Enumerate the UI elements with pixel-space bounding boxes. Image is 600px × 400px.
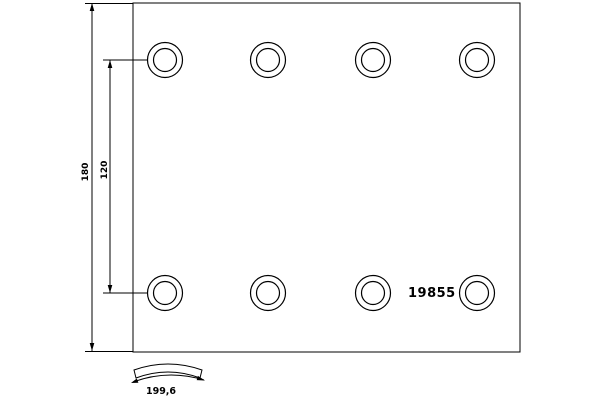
arrowhead-down-icon [90,343,95,351]
arrowhead-up-icon [90,3,95,11]
height-dimension-label: 180 [81,163,91,182]
brake-lining-diagram: 180 120 19855 199,6 [0,0,600,400]
plate-outline [133,3,520,352]
part-number-label: 19855 [408,286,456,301]
arrowhead-down-icon [108,285,113,293]
arc-width-label: 199,6 [146,386,176,397]
arrowhead-left-icon [131,379,138,384]
arrowhead-up-icon [108,60,113,68]
technical-drawing-canvas: 180 120 19855 199,6 [0,0,600,400]
spacing-dimension-label: 120 [100,161,110,180]
lining-cross-section [134,364,202,378]
